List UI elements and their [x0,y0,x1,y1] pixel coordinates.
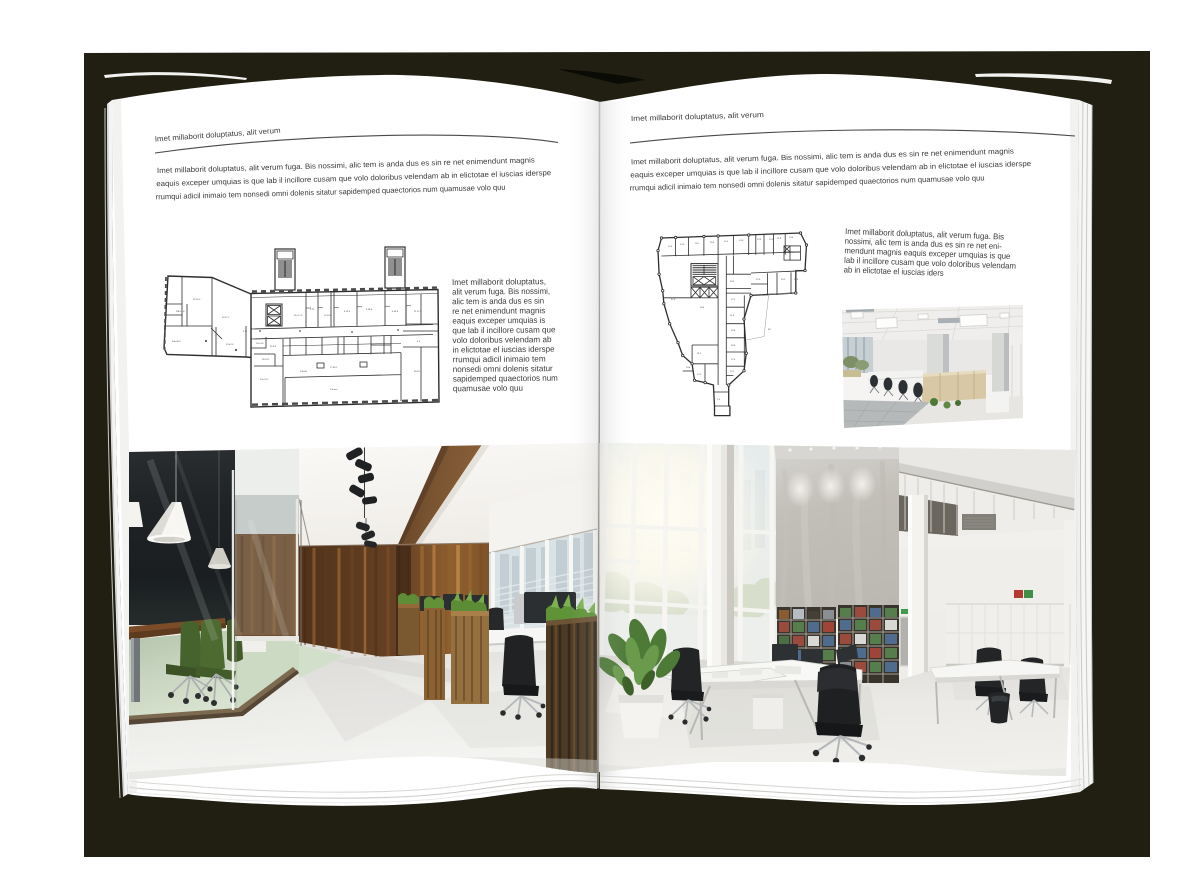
svg-text:31 37.2: 31 37.2 [414,311,422,313]
svg-text:17 80.2: 17 80.2 [330,367,338,369]
svg-text:6 34.5: 6 34.5 [392,311,399,313]
svg-text:23a 31.7: 23a 31.7 [260,379,269,381]
svg-text:11a 17.8: 11a 17.8 [294,315,303,317]
svg-text:13 15.6: 13 15.6 [324,315,332,317]
svg-text:20b 40.3: 20b 40.3 [172,341,181,343]
svg-text:28 14.1: 28 14.1 [262,359,270,361]
svg-text:22a 4.8: 22a 4.8 [256,343,264,345]
svg-text:30 50.7: 30 50.7 [414,371,422,373]
svg-text:quamusae volo quu: quamusae volo quu [453,383,523,394]
svg-text:2-й зал: 2-й зал [330,388,338,391]
svg-text:26 9.9: 26 9.9 [270,346,277,348]
svg-text:140.68: 140.68 [300,371,307,373]
svg-text:29b 12.6: 29b 12.6 [176,311,185,313]
svg-text:8 19.5: 8 19.5 [344,311,351,313]
svg-text:9 28.6: 9 28.6 [366,309,373,311]
svg-text:32 37.7: 32 37.7 [222,317,230,319]
svg-text:25 42.6: 25 42.6 [226,344,234,346]
svg-text:25 34.2: 25 34.2 [193,299,201,301]
